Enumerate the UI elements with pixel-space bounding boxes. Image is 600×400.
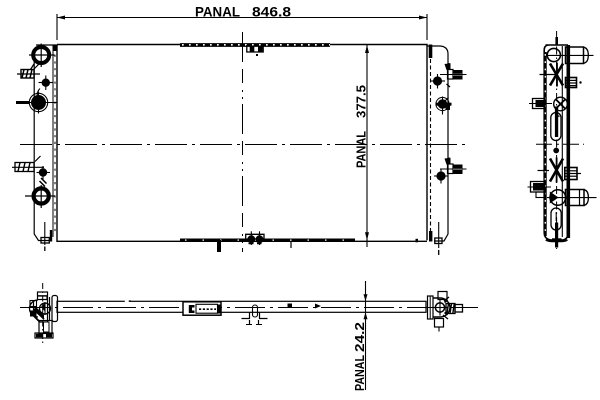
svg-text:24.2: 24.2 [352,322,367,352]
svg-text:PANAL: PANAL [195,4,240,20]
svg-text:PANAL: PANAL [354,131,369,168]
svg-text:PANAL: PANAL [352,355,367,391]
svg-text:377.5: 377.5 [354,85,369,118]
svg-text:846.8: 846.8 [252,4,291,20]
